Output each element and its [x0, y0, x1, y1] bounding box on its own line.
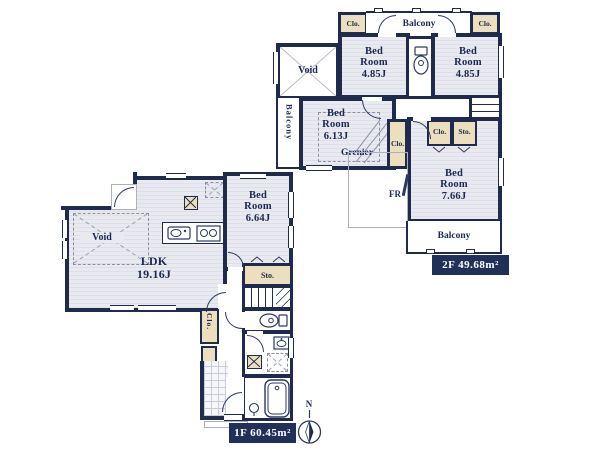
window: [498, 46, 504, 78]
stair-treads: [245, 288, 276, 307]
window: [110, 305, 134, 311]
balcony-2f-bottom: Balcony: [406, 221, 502, 254]
shower-basin-icon: [247, 402, 261, 417]
window: [240, 173, 266, 179]
entrance-door-gap: [224, 414, 242, 421]
railing-post: [466, 249, 475, 254]
window: [62, 241, 68, 259]
area-label-1f: 1F 60.45m²: [229, 423, 296, 443]
x-mark-icon: [268, 354, 287, 371]
window: [273, 52, 279, 84]
bedroom-766-label: Bed Room 7.66J: [426, 168, 482, 202]
balcony-left-label: Balcony: [285, 104, 295, 164]
toilet-icon: [258, 312, 288, 329]
refrigerator-space: [205, 182, 224, 198]
bathtub-icon: [264, 379, 290, 418]
bedroom-613-label: Bed Room 6.13J: [310, 108, 362, 142]
window: [166, 173, 186, 179]
folding-door-mark: [432, 146, 446, 153]
void-2f-label: Void: [286, 66, 330, 76]
window: [288, 338, 294, 358]
closet-label: Clo.: [473, 20, 497, 28]
railing-post: [412, 8, 421, 13]
area-label-2f: 2F 49.68m²: [432, 255, 509, 275]
closet-label: Clo.: [429, 128, 450, 136]
toilet-icon: [412, 46, 430, 76]
door-gap: [438, 33, 456, 37]
closet-2f-inner: Clo.: [427, 120, 452, 146]
folding-door-mark: [457, 146, 471, 153]
compass-n-label: N: [303, 400, 315, 409]
balcony-2f-left: Balcony: [276, 98, 301, 169]
railing-post: [452, 8, 461, 13]
sink-icon: [167, 226, 191, 240]
window: [498, 158, 504, 186]
x-mark-icon: [206, 183, 223, 197]
fr-label: FR: [386, 190, 404, 199]
closet-label: Clo.: [341, 20, 365, 28]
compass-icon: [296, 410, 323, 447]
stairs-1f: [242, 285, 293, 310]
bedroom-664-label: Bed Room 6.64J: [230, 190, 286, 224]
bedroom-485-right-label: Bed Room 4.85J: [440, 46, 496, 80]
floor-hatch-icon: [247, 355, 262, 369]
window: [62, 220, 68, 238]
floor-plan-canvas: Clo. Balcony Clo. Bed Room 4.85J Bed Roo…: [0, 0, 600, 450]
closet-2f-top-left: Clo.: [338, 12, 368, 35]
closet-label: Clo.: [205, 313, 214, 330]
folding-door-mark: [250, 256, 264, 263]
stove-icon: [196, 225, 221, 242]
door-gap: [378, 33, 396, 37]
floor-hatch-icon: [184, 196, 198, 210]
side-entry-nook: [111, 184, 137, 210]
storage-1f: Sto.: [242, 263, 293, 287]
railing-post: [374, 8, 383, 13]
storage-label: Sto.: [454, 128, 475, 136]
washing-machine-space: [267, 353, 288, 372]
closet-1f: Clo.: [200, 309, 219, 344]
closet-label: Clo.: [390, 140, 405, 148]
storage-label: Sto.: [245, 272, 290, 280]
balcony-label: Balcony: [408, 232, 500, 242]
bedroom-485-left-label: Bed Room 4.85J: [346, 46, 402, 80]
railing-post: [426, 249, 435, 254]
door-arc: [114, 187, 134, 207]
storage-2f-inner: Sto.: [452, 120, 477, 146]
stair-winders: [276, 288, 290, 307]
window: [306, 165, 332, 171]
window: [288, 192, 294, 218]
door-gap: [242, 312, 246, 328]
window: [138, 305, 176, 311]
closet-2f-top-right: Clo.: [470, 12, 500, 35]
folding-door-mark: [272, 256, 286, 263]
void-1f-label: Void: [80, 233, 124, 243]
ldk-label: LDK 19.16J: [126, 255, 182, 281]
window: [288, 226, 294, 248]
